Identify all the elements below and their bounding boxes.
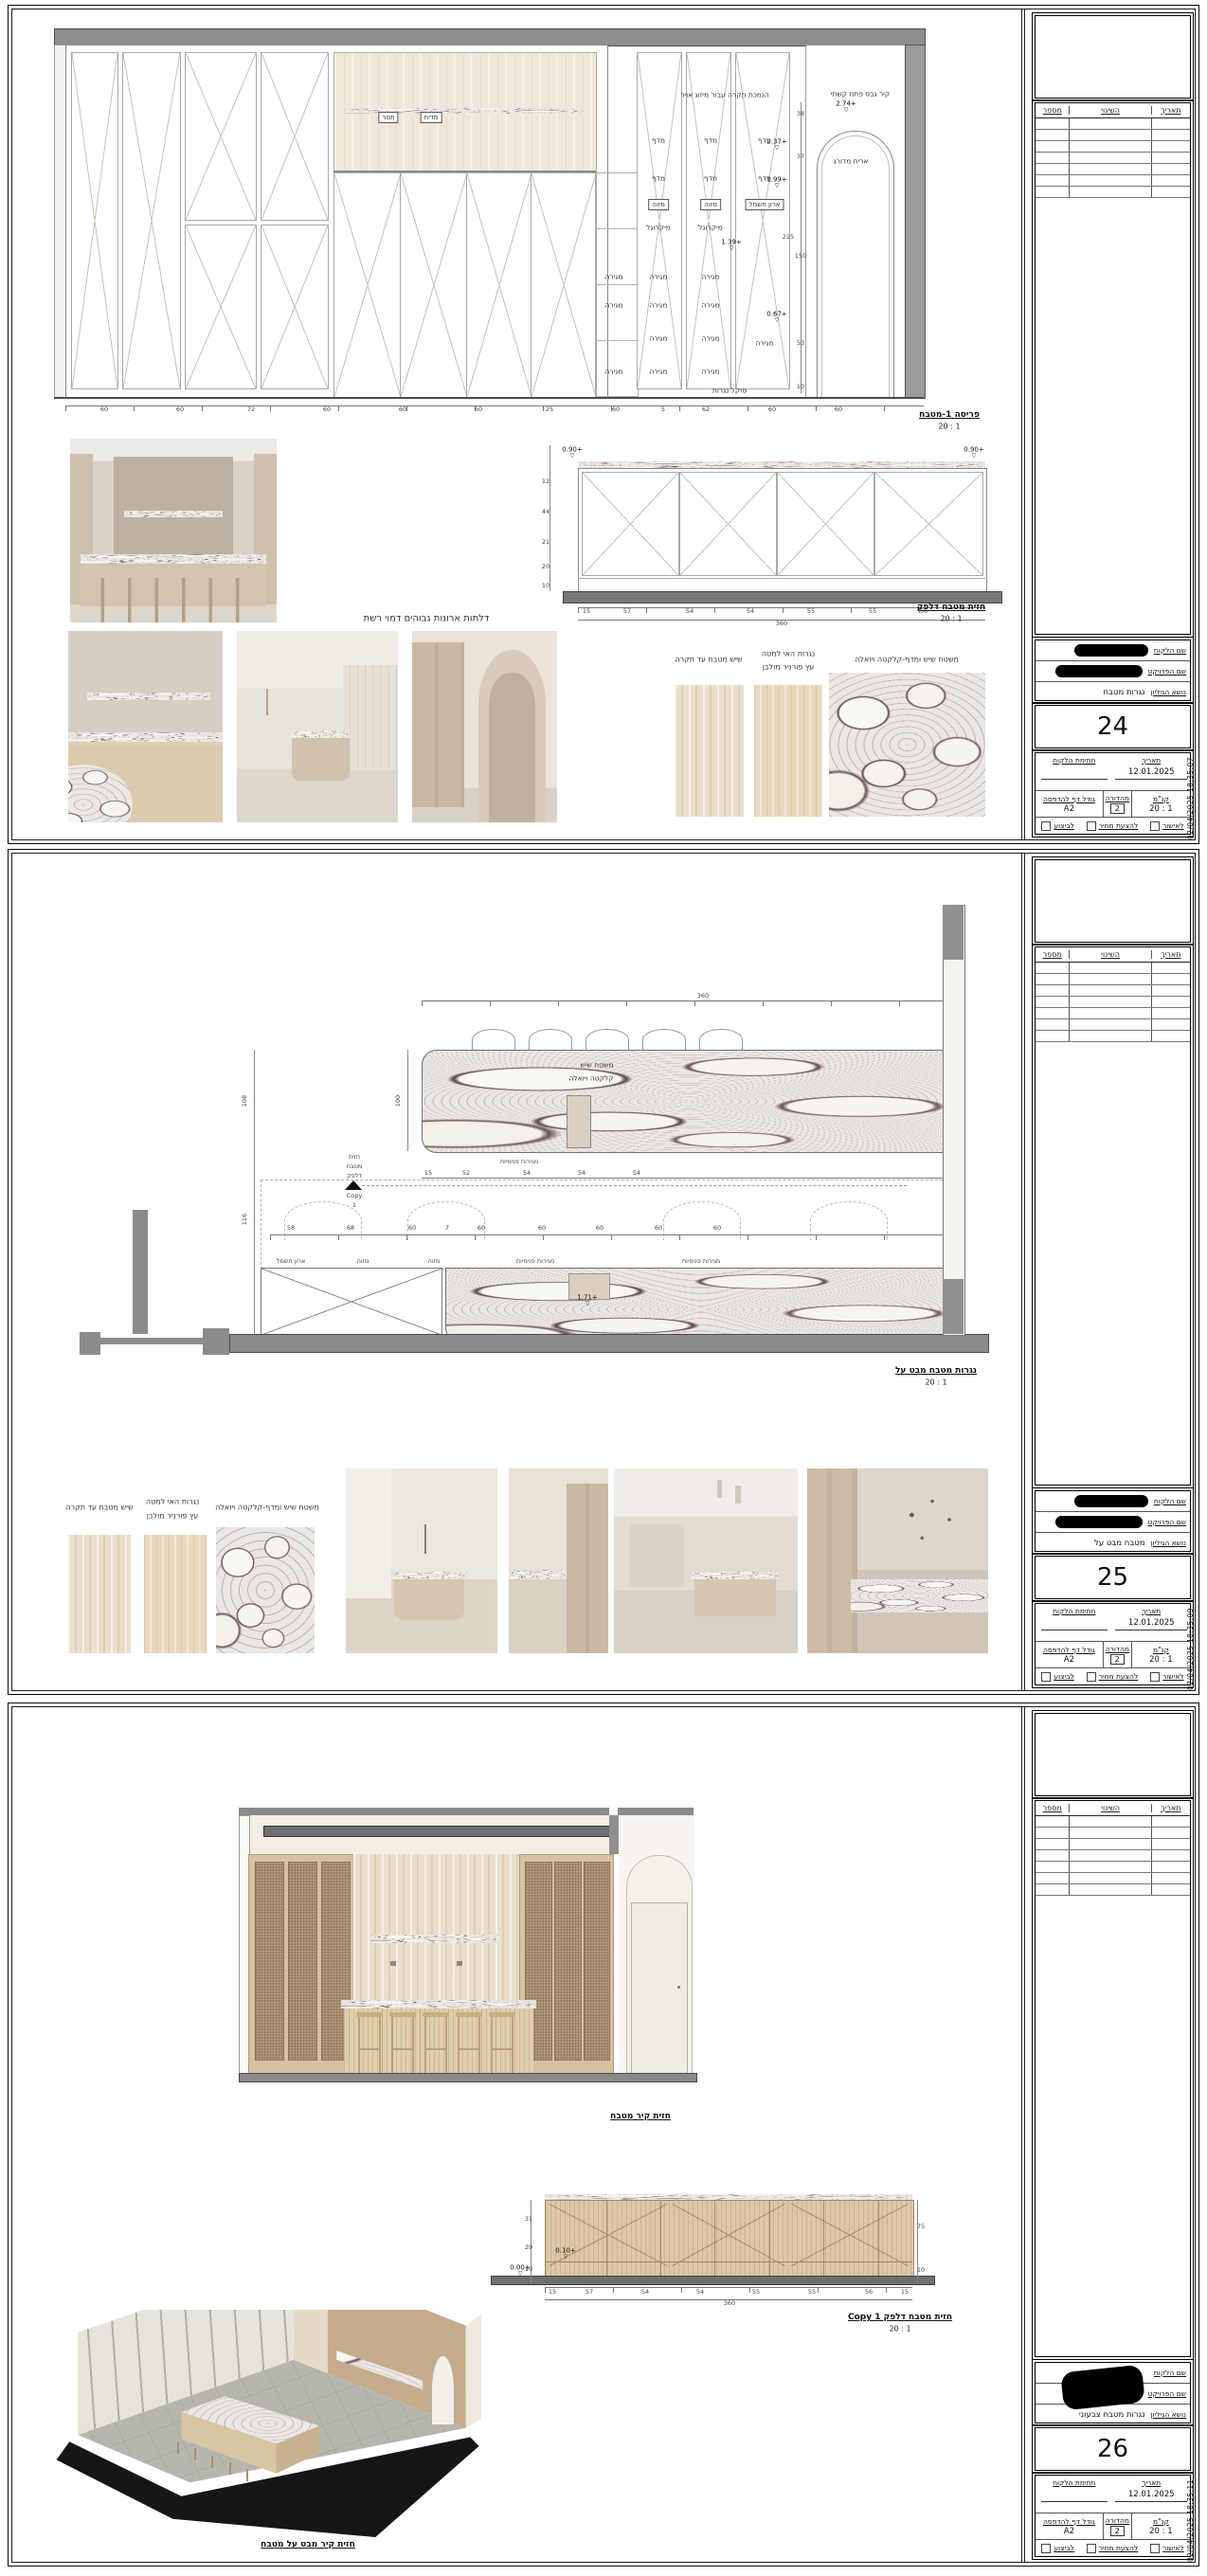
check-quote: להצעת מחיר: [1087, 821, 1139, 831]
sheet-26: מספר השינוי תאריך שם הלקוח שם הפרויקט נו…: [8, 1702, 1199, 2567]
edition-value: 2: [1110, 803, 1125, 814]
subject-label: נושא הגיליון: [1151, 2410, 1186, 2419]
check-label: לביצוע: [1054, 1672, 1073, 1681]
date-label: תאריך: [1142, 2478, 1161, 2487]
date-label: תאריך: [1142, 756, 1161, 765]
drawing-set-page: מספר השינוי תאריך שם הלקוח שם הפרויקט נו…: [0, 0, 1207, 2576]
revision-table: מספר השינוי תאריך: [1035, 946, 1191, 1486]
check-label: לאישור: [1162, 2544, 1184, 2552]
checkbox-icon: [1087, 2544, 1096, 2553]
sheet-number: 26: [1097, 2435, 1128, 2463]
sheet-number-box: 24: [1035, 705, 1191, 748]
date-cell: תאריך 12.01.2025: [1113, 1604, 1191, 1641]
rev-col-number: מספר: [1036, 1804, 1069, 1812]
revision-header: מספר השינוי תאריך: [1036, 947, 1190, 963]
check-approval: לאישור: [1150, 821, 1184, 831]
checkbox-icon: [1087, 1672, 1096, 1682]
logo-box: [1035, 15, 1191, 99]
paper-label: גודל דף להדפסה: [1043, 2517, 1095, 2526]
signature-label: חתימת הלקוח: [1053, 1607, 1095, 1615]
date-line: [1115, 2500, 1187, 2502]
paper-value: A2: [1064, 1655, 1074, 1665]
signature-label: חתימת הלקוח: [1053, 756, 1095, 765]
date-line: [1115, 778, 1187, 780]
revision-row: [1036, 130, 1190, 141]
sheet-number: 25: [1097, 1563, 1128, 1592]
print-timestamp: 02/04/2025 18:35:07: [1186, 757, 1195, 839]
revision-row: [1036, 974, 1190, 985]
check-label: להצעת מחיר: [1099, 821, 1139, 830]
signature-info-box: חתימת הלקוח תאריך 12.01.2025 גודל דף להד…: [1035, 752, 1191, 835]
revision-row: [1036, 1862, 1190, 1873]
sheet-number-box: 25: [1035, 1556, 1191, 1599]
scale-label: קנ"מ: [1153, 795, 1169, 803]
paper-edition-scale-row: גודל דף להדפסה A2 מהדורה 2 קנ"מ 1 : 20: [1036, 791, 1190, 818]
rev-col-date: תאריך: [1151, 106, 1190, 115]
checkbox-icon: [1087, 821, 1096, 831]
scale-cell: קנ"מ 1 : 20: [1132, 2513, 1190, 2539]
scale-value: 1 : 20: [1149, 1655, 1173, 1665]
sheet-25: מספר השינוי תאריך שם הלקוח שם הפרויקט נו…: [8, 849, 1199, 1695]
revision-rows: [1036, 963, 1190, 1042]
project-row: שם הפרויקט: [1036, 1512, 1190, 1533]
revision-row: [1036, 1850, 1190, 1862]
date-line: [1115, 1629, 1187, 1630]
redacted-project-name: [1055, 665, 1143, 677]
edition-value: 2: [1110, 2526, 1125, 2536]
rev-col-number: מספר: [1036, 950, 1069, 959]
paper-label: גודל דף להדפסה: [1043, 795, 1095, 803]
date-value: 12.01.2025: [1128, 767, 1175, 777]
paper-value: A2: [1064, 2527, 1074, 2536]
revision-row: [1036, 1008, 1190, 1019]
signature-line: [1041, 1618, 1108, 1630]
scale-value: 1 : 20: [1149, 2527, 1173, 2536]
project-info-box: שם הלקוח שם הפרויקט נושא הגיליון מטבח מב…: [1035, 1490, 1191, 1552]
checkbox-icon: [1041, 2544, 1051, 2553]
logo-box: [1035, 1713, 1191, 1796]
check-quote: להצעת מחיר: [1087, 1672, 1139, 1682]
subject-row: נושא הגיליון מטבח מבט על: [1036, 1533, 1190, 1553]
rev-col-change: השינוי: [1069, 950, 1150, 959]
revision-rows: [1036, 118, 1190, 198]
logo-box: [1035, 859, 1191, 943]
check-label: להצעת מחיר: [1099, 1672, 1139, 1681]
project-info-box: שם הלקוח שם הפרויקט נושא הגיליון נגרות מ…: [1035, 2362, 1191, 2423]
scale-label: קנ"מ: [1153, 2517, 1169, 2526]
paper-cell: גודל דף להדפסה A2: [1036, 1642, 1103, 1667]
project-label: שם הפרויקט: [1148, 1518, 1186, 1526]
rev-col-change: השינוי: [1069, 1804, 1150, 1812]
scale-cell: קנ"מ 1 : 20: [1132, 791, 1190, 817]
project-row: שם הפרויקט: [1036, 661, 1190, 682]
signature-cell: חתימת הלקוח: [1036, 2476, 1113, 2513]
redacted-client-name: [1074, 644, 1148, 657]
signature-info-box: חתימת הלקוח תאריך 12.01.2025 גודל דף להד…: [1035, 2475, 1191, 2557]
revision-row: [1036, 1873, 1190, 1884]
status-checkboxes: לביצוע להצעת מחיר לאישור: [1036, 2540, 1190, 2556]
edition-cell: מהדורה 2: [1103, 1642, 1132, 1667]
scale-value: 1 : 20: [1149, 804, 1173, 814]
redacted-client-name: [1074, 1495, 1148, 1507]
sheet-subject: נגרות מטבח צבעוני: [1079, 2410, 1145, 2420]
rev-col-date: תאריך: [1151, 950, 1190, 959]
checkbox-icon: [1041, 821, 1051, 831]
revision-row: [1036, 963, 1190, 974]
edition-label: מהדורה: [1106, 2516, 1129, 2525]
titleblock-divider: [1021, 853, 1025, 1691]
signature-line: [1041, 2490, 1108, 2502]
revision-row: [1036, 118, 1190, 130]
client-label: שם הלקוח: [1154, 646, 1186, 655]
subject-row: נושא הגיליון נגרות מטבח צבעוני: [1036, 2405, 1190, 2425]
edition-label: מהדורה: [1106, 1645, 1129, 1653]
scale-label: קנ"מ: [1153, 1646, 1169, 1654]
checkbox-icon: [1150, 821, 1160, 831]
revision-table: מספר השינוי תאריך: [1035, 102, 1191, 635]
subject-row: נושא הגיליון נגרות מטבח: [1036, 682, 1190, 702]
revision-header: מספר השינוי תאריך: [1036, 1801, 1190, 1816]
edition-cell: מהדורה 2: [1103, 2513, 1132, 2539]
date-cell: תאריך 12.01.2025: [1113, 2476, 1191, 2513]
signature-date-row: חתימת הלקוח תאריך 12.01.2025: [1036, 2476, 1190, 2513]
print-timestamp: 02/04/2025 18:35:09: [1186, 1608, 1195, 1690]
checkbox-icon: [1150, 1672, 1160, 1682]
date-cell: תאריך 12.01.2025: [1113, 753, 1191, 790]
sheet-subject: נגרות מטבח: [1103, 688, 1144, 697]
rev-col-date: תאריך: [1151, 1804, 1190, 1812]
check-execution: לביצוע: [1041, 2544, 1073, 2553]
signature-cell: חתימת הלקוח: [1036, 753, 1113, 790]
revision-row: [1036, 1019, 1190, 1031]
status-checkboxes: לביצוע להצעת מחיר לאישור: [1036, 1668, 1190, 1684]
check-label: לביצוע: [1054, 821, 1073, 830]
revision-row: [1036, 187, 1190, 198]
revision-row: [1036, 1031, 1190, 1042]
revision-header: מספר השינוי תאריך: [1036, 103, 1190, 118]
revision-row: [1036, 1884, 1190, 1896]
signature-info-box: חתימת הלקוח תאריך 12.01.2025 גודל דף להד…: [1035, 1603, 1191, 1685]
check-approval: לאישור: [1150, 2544, 1184, 2553]
revision-row: [1036, 141, 1190, 153]
edition-cell: מהדורה 2: [1103, 791, 1132, 817]
check-execution: לביצוע: [1041, 1672, 1073, 1682]
status-checkboxes: לביצוע להצעת מחיר לאישור: [1036, 818, 1190, 834]
paper-edition-scale-row: גודל דף להדפסה A2 מהדורה 2 קנ"מ 1 : 20: [1036, 2513, 1190, 2540]
edition-value: 2: [1110, 1654, 1125, 1665]
edition-label: מהדורה: [1106, 794, 1129, 802]
titleblock-divider: [1021, 1706, 1025, 2563]
revision-row: [1036, 164, 1190, 175]
revision-row: [1036, 1816, 1190, 1828]
rev-col-change: השינוי: [1069, 106, 1150, 115]
revision-rows: [1036, 1816, 1190, 1896]
revision-row: [1036, 997, 1190, 1008]
signature-label: חתימת הלקוח: [1053, 2478, 1095, 2487]
date-label: תאריך: [1142, 1607, 1161, 1615]
signature-cell: חתימת הלקוח: [1036, 1604, 1113, 1641]
date-value: 12.01.2025: [1128, 2490, 1175, 2499]
revision-row: [1036, 1828, 1190, 1839]
project-label: שם הפרויקט: [1148, 2389, 1186, 2398]
check-label: לאישור: [1162, 1672, 1184, 1681]
revision-row: [1036, 1839, 1190, 1850]
client-label: שם הלקוח: [1154, 2369, 1186, 2377]
client-row: שם הלקוח: [1036, 1491, 1190, 1512]
checkbox-icon: [1150, 2544, 1160, 2553]
subject-label: נושא הגיליון: [1151, 1539, 1186, 1547]
sheet-24: מספר השינוי תאריך שם הלקוח שם הפרויקט נו…: [8, 5, 1199, 844]
paper-cell: גודל דף להדפסה A2: [1036, 791, 1103, 817]
signature-date-row: חתימת הלקוח תאריך 12.01.2025: [1036, 1604, 1190, 1642]
subject-label: נושא הגיליון: [1151, 688, 1186, 696]
project-label: שם הפרויקט: [1148, 667, 1186, 676]
sheet-number: 24: [1097, 712, 1128, 741]
revision-row: [1036, 985, 1190, 997]
revision-row: [1036, 153, 1190, 164]
checkbox-icon: [1041, 1672, 1051, 1682]
client-label: שם הלקוח: [1154, 1497, 1186, 1505]
revision-row: [1036, 175, 1190, 187]
paper-edition-scale-row: גודל דף להדפסה A2 מהדורה 2 קנ"מ 1 : 20: [1036, 1642, 1190, 1668]
check-label: לאישור: [1162, 821, 1184, 830]
signature-line: [1041, 767, 1108, 780]
client-row: שם הלקוח: [1036, 640, 1190, 661]
sheet-subject: מטבח מבט על: [1094, 1539, 1145, 1548]
print-timestamp: 02/04/2025 18:35:11: [1186, 2479, 1195, 2562]
paper-cell: גודל דף להדפסה A2: [1036, 2513, 1103, 2539]
rev-col-number: מספר: [1036, 106, 1069, 115]
date-value: 12.01.2025: [1128, 1618, 1175, 1628]
check-label: לביצוע: [1054, 2544, 1073, 2552]
redacted-project-name: [1055, 1516, 1143, 1528]
paper-label: גודל דף להדפסה: [1043, 1646, 1095, 1654]
revision-table: מספר השינוי תאריך: [1035, 1800, 1191, 2357]
paper-value: A2: [1064, 804, 1074, 814]
project-info-box: שם הלקוח שם הפרויקט נושא הגיליון נגרות מ…: [1035, 639, 1191, 701]
check-label: להצעת מחיר: [1099, 2544, 1139, 2552]
check-approval: לאישור: [1150, 1672, 1184, 1682]
check-execution: לביצוע: [1041, 821, 1073, 831]
scale-cell: קנ"מ 1 : 20: [1132, 1642, 1190, 1667]
signature-date-row: חתימת הלקוח תאריך 12.01.2025: [1036, 753, 1190, 791]
titleblock-divider: [1021, 9, 1025, 840]
check-quote: להצעת מחיר: [1087, 2544, 1139, 2553]
sheet-number-box: 26: [1035, 2427, 1191, 2471]
